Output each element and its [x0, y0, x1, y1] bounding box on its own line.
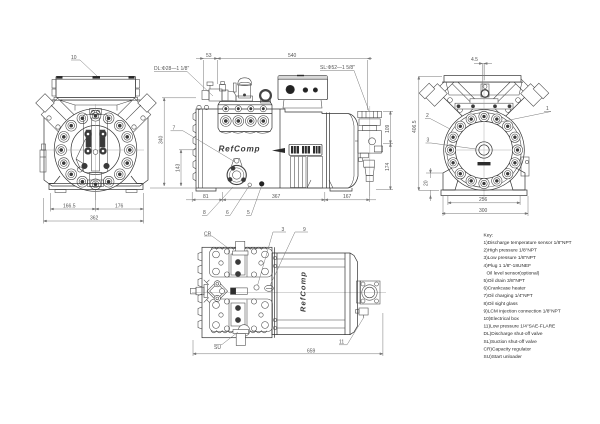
- svg-text:8: 8: [203, 210, 206, 216]
- svg-text:5)Oil drain 3/8"NPT: 5)Oil drain 3/8"NPT: [484, 278, 525, 284]
- svg-text:7)Oil charging 1/4"NPT: 7)Oil charging 1/4"NPT: [484, 293, 533, 299]
- svg-text:DL:Φ28—1 1/8": DL:Φ28—1 1/8": [154, 66, 189, 72]
- svg-text:166.5: 166.5: [63, 204, 76, 210]
- svg-text:RefComp: RefComp: [219, 145, 260, 154]
- svg-text:362: 362: [90, 216, 99, 222]
- svg-text:Oil level sensor(optional): Oil level sensor(optional): [487, 270, 540, 276]
- svg-text:6)Crankcase heater: 6)Crankcase heater: [484, 286, 527, 292]
- svg-text:10)Electrical box: 10)Electrical box: [484, 316, 520, 322]
- svg-text:SL)Suction shut-off valve: SL)Suction shut-off valve: [484, 339, 538, 345]
- svg-text:DL)Discharge shut-off valve: DL)Discharge shut-off valve: [484, 331, 543, 337]
- svg-text:SU)Start unloader: SU)Start unloader: [484, 354, 523, 360]
- svg-text:2: 2: [426, 113, 429, 119]
- svg-text:176: 176: [115, 204, 124, 210]
- svg-text:53: 53: [206, 53, 212, 59]
- svg-text:5: 5: [247, 210, 250, 216]
- svg-text:109: 109: [385, 124, 391, 133]
- svg-text:9)LCM injection connection 1/8: 9)LCM injection connection 1/8"NPT: [484, 308, 561, 314]
- svg-text:20: 20: [424, 180, 430, 186]
- svg-text:4.5: 4.5: [471, 57, 478, 63]
- svg-text:3)Low pressure 1/8"NPT: 3)Low pressure 1/8"NPT: [484, 255, 536, 261]
- svg-text:1)Discharge temperature sensor: 1)Discharge temperature sensor 1/8"NPT: [484, 240, 572, 246]
- svg-text:CR: CR: [204, 232, 212, 238]
- svg-text:406.5: 406.5: [412, 120, 418, 133]
- svg-text:6: 6: [226, 210, 229, 216]
- svg-text:8)Oil sight glass: 8)Oil sight glass: [484, 301, 519, 307]
- svg-text:SU: SU: [214, 345, 221, 351]
- svg-text:Key:: Key:: [484, 233, 494, 239]
- svg-text:2)High pressure 1/8"NPT: 2)High pressure 1/8"NPT: [484, 248, 537, 254]
- svg-text:3: 3: [427, 138, 430, 144]
- svg-text:CR)Capacity regulator: CR)Capacity regulator: [484, 346, 532, 352]
- svg-text:167: 167: [343, 194, 352, 200]
- svg-text:SL:Φ52—1 5/8": SL:Φ52—1 5/8": [320, 65, 355, 71]
- svg-text:174: 174: [385, 162, 391, 171]
- svg-text:659: 659: [307, 348, 316, 354]
- svg-text:1: 1: [546, 106, 549, 112]
- svg-text:7: 7: [173, 125, 176, 131]
- svg-text:4)Plug 1 1/8"-18UNEF: 4)Plug 1 1/8"-18UNEF: [484, 263, 532, 269]
- svg-text:256: 256: [479, 197, 488, 203]
- svg-text:340: 340: [159, 135, 165, 144]
- svg-text:367: 367: [272, 194, 281, 200]
- svg-text:143: 143: [176, 163, 182, 172]
- svg-text:540: 540: [288, 53, 297, 59]
- svg-text:81: 81: [203, 194, 209, 200]
- svg-text:11)Low pressure 1/4"SAE-FLARE: 11)Low pressure 1/4"SAE-FLARE: [484, 324, 556, 330]
- svg-text:300: 300: [479, 208, 488, 214]
